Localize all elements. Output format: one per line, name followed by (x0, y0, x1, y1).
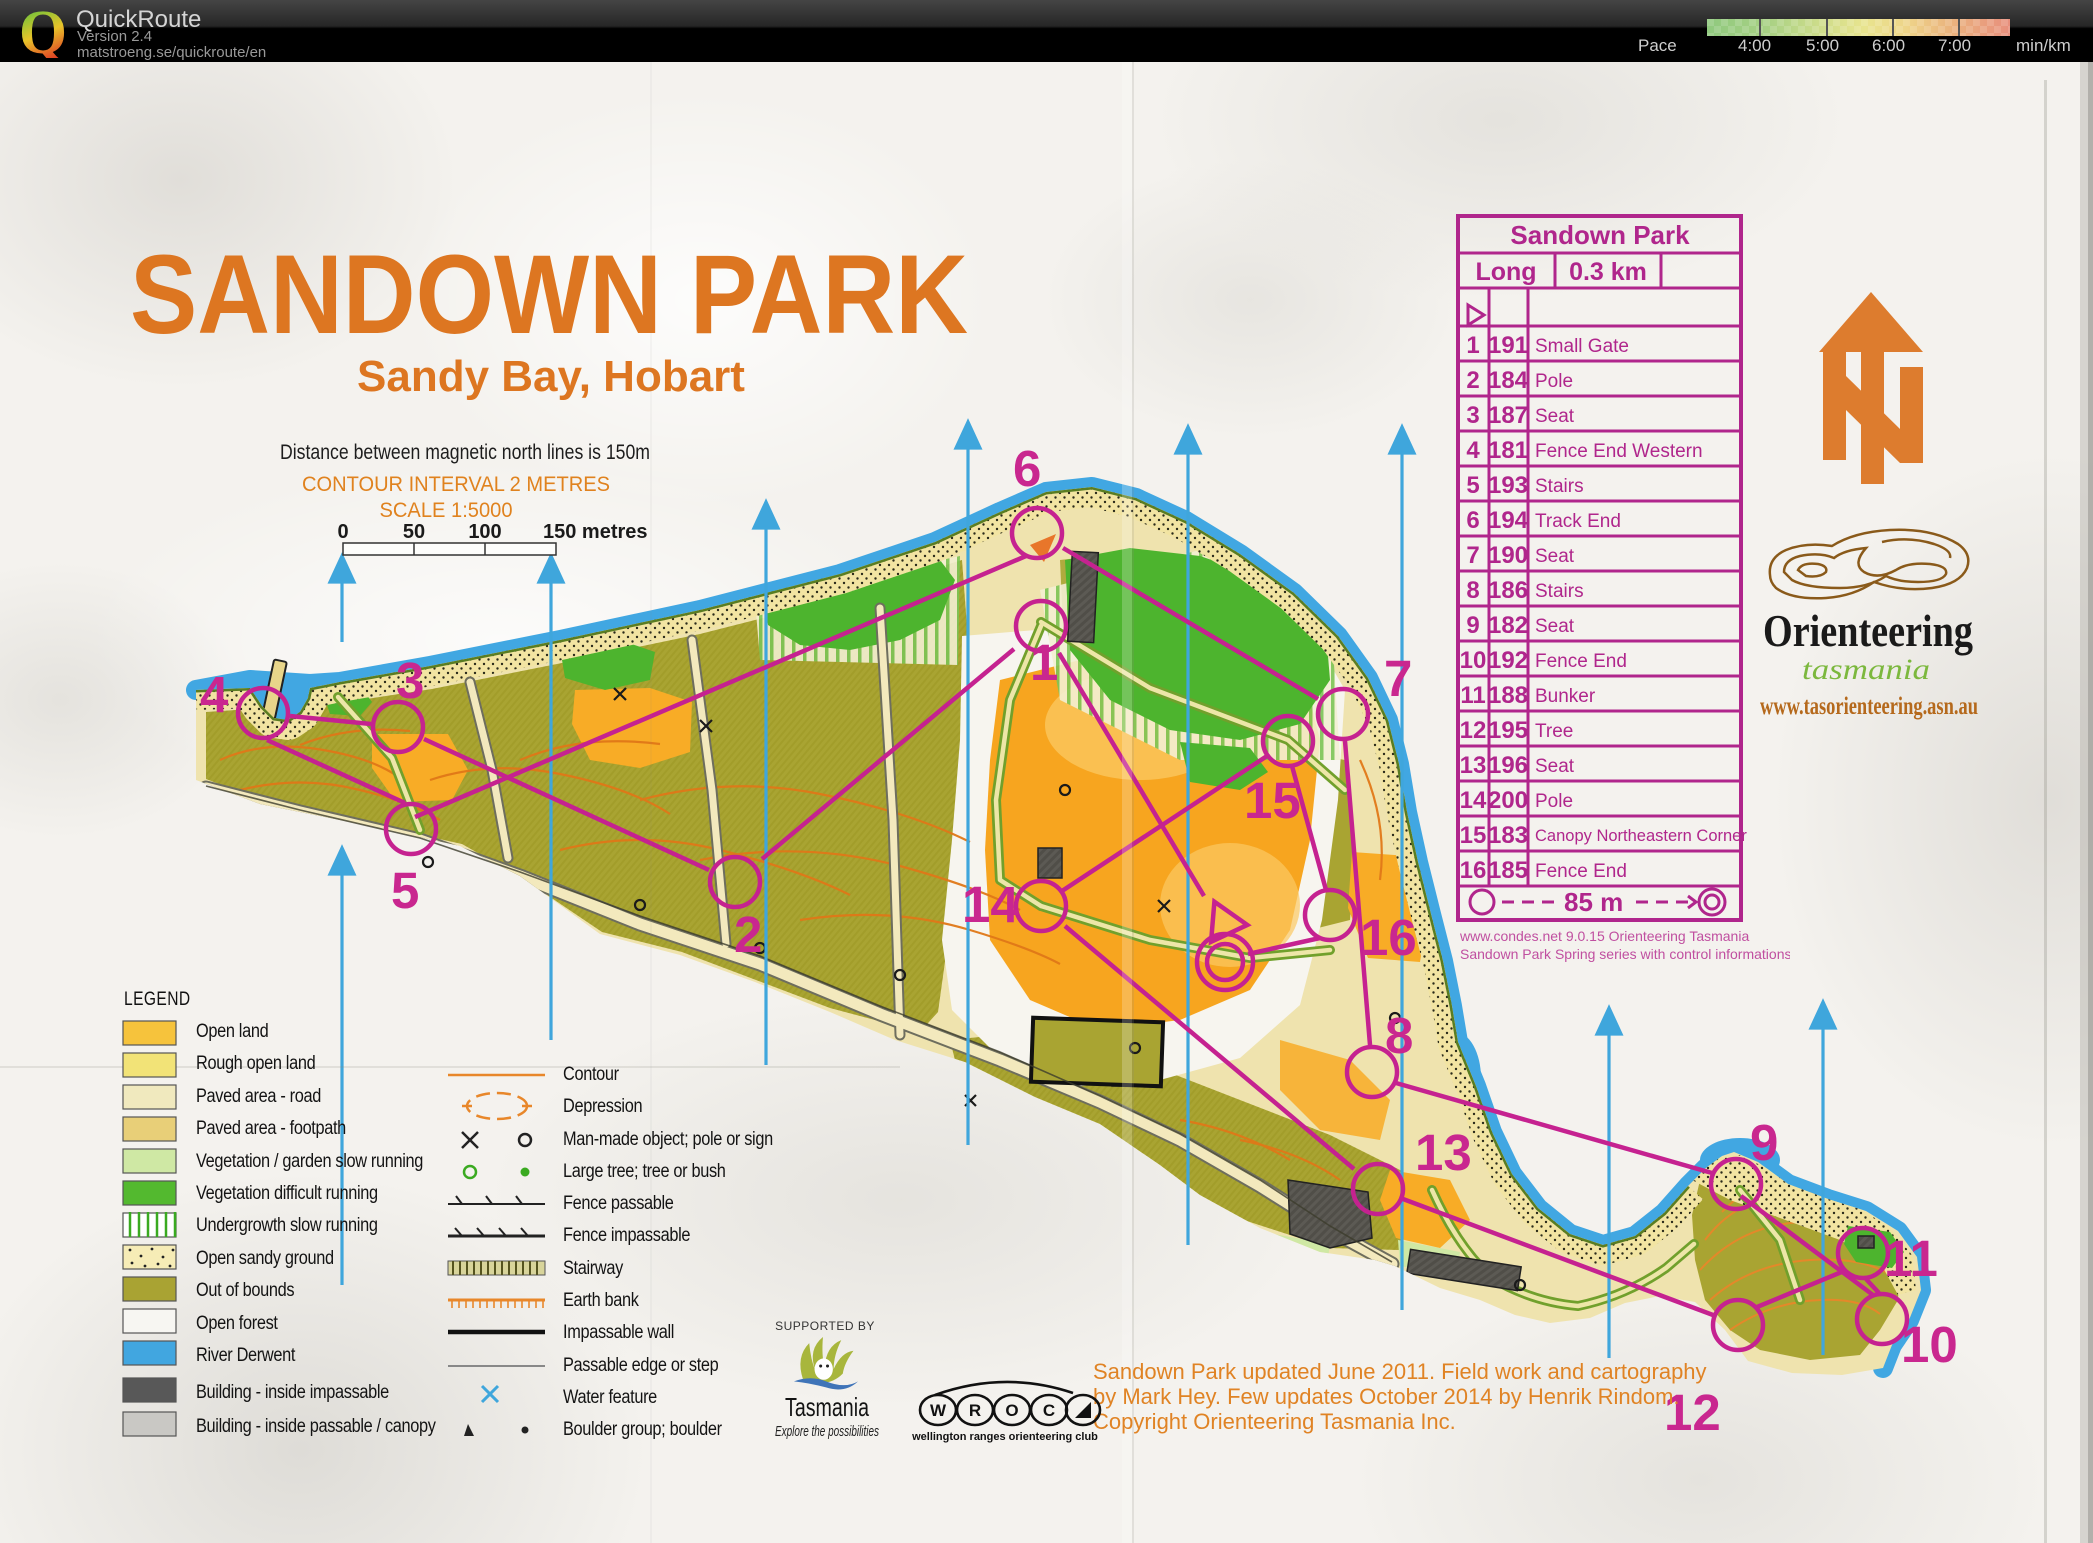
svg-text:Canopy Northeastern Corner: Canopy Northeastern Corner (1535, 827, 1747, 845)
svg-text:Bunker: Bunker (1535, 686, 1596, 707)
svg-text:2: 2 (1466, 367, 1479, 394)
svg-text:Pole: Pole (1535, 791, 1573, 812)
svg-text:R: R (969, 1401, 981, 1420)
svg-text:13: 13 (1460, 752, 1487, 779)
svg-text:Long: Long (1475, 258, 1536, 286)
svg-text:8: 8 (1466, 577, 1479, 604)
svg-text:Sandown Park Spring series wit: Sandown Park Spring series with control … (1460, 946, 1790, 962)
svg-text:Tree: Tree (1535, 721, 1573, 742)
svg-text:6: 6 (1466, 507, 1479, 534)
svg-text:Sandown Park: Sandown Park (1510, 220, 1690, 250)
svg-text:W: W (930, 1401, 947, 1420)
svg-text:Pole: Pole (1535, 371, 1573, 392)
svg-text:Small Gate: Small Gate (1535, 336, 1629, 357)
svg-text:9: 9 (1466, 612, 1479, 639)
svg-text:184: 184 (1488, 367, 1529, 394)
svg-text:190: 190 (1488, 542, 1528, 569)
svg-text:4: 4 (1466, 437, 1480, 464)
svg-text:wellington ranges orienteering: wellington ranges orienteering club (911, 1431, 1098, 1443)
svg-text:Tasmania: Tasmania (785, 1394, 869, 1422)
svg-text:12: 12 (1460, 717, 1487, 744)
svg-text:187: 187 (1488, 402, 1528, 429)
svg-text:tasmania: tasmania (1802, 653, 1930, 686)
svg-text:www.condes.net 9.0.15 Orientee: www.condes.net 9.0.15 Orienteering Tasma… (1459, 928, 1749, 944)
svg-text:Fence End: Fence End (1535, 651, 1627, 672)
svg-text:196: 196 (1488, 752, 1528, 779)
svg-text:Orienteering: Orienteering (1763, 605, 1973, 656)
svg-text:Explore the possibilities: Explore the possibilities (775, 1423, 879, 1440)
svg-text:185: 185 (1488, 857, 1528, 884)
svg-text:183: 183 (1488, 822, 1528, 849)
svg-text:181: 181 (1488, 437, 1528, 464)
svg-text:Seat: Seat (1535, 616, 1575, 637)
svg-text:85 m: 85 m (1564, 887, 1623, 917)
svg-text:Seat: Seat (1535, 756, 1575, 777)
svg-text:7: 7 (1466, 542, 1479, 569)
svg-text:194: 194 (1488, 507, 1529, 534)
svg-text:0.3 km: 0.3 km (1569, 258, 1647, 286)
svg-text:5: 5 (1466, 472, 1479, 499)
svg-text:Fence End: Fence End (1535, 861, 1627, 882)
svg-text:Seat: Seat (1535, 406, 1575, 427)
svg-text:186: 186 (1488, 577, 1528, 604)
svg-text:Track End: Track End (1535, 511, 1621, 532)
svg-text:Seat: Seat (1535, 546, 1575, 567)
svg-text:C: C (1043, 1401, 1055, 1420)
svg-text:www.tasorienteering.asn.au: www.tasorienteering.asn.au (1760, 693, 1978, 720)
svg-text:Stairs: Stairs (1535, 581, 1584, 602)
svg-text:O: O (1005, 1401, 1018, 1420)
svg-text:15: 15 (1460, 822, 1487, 849)
svg-text:10: 10 (1460, 647, 1487, 674)
svg-text:1: 1 (1466, 332, 1479, 359)
svg-text:188: 188 (1488, 682, 1528, 709)
svg-text:16: 16 (1460, 857, 1487, 884)
svg-text:Fence End Western: Fence End Western (1535, 441, 1703, 462)
svg-text:192: 192 (1488, 647, 1528, 674)
svg-text:200: 200 (1488, 787, 1528, 814)
svg-text:3: 3 (1466, 402, 1479, 429)
svg-text:193: 193 (1488, 472, 1528, 499)
svg-text:191: 191 (1488, 332, 1528, 359)
svg-text:14: 14 (1460, 787, 1487, 814)
svg-text:195: 195 (1488, 717, 1528, 744)
svg-text:Stairs: Stairs (1535, 476, 1584, 497)
svg-text:11: 11 (1460, 682, 1485, 709)
svg-text:182: 182 (1488, 612, 1528, 639)
